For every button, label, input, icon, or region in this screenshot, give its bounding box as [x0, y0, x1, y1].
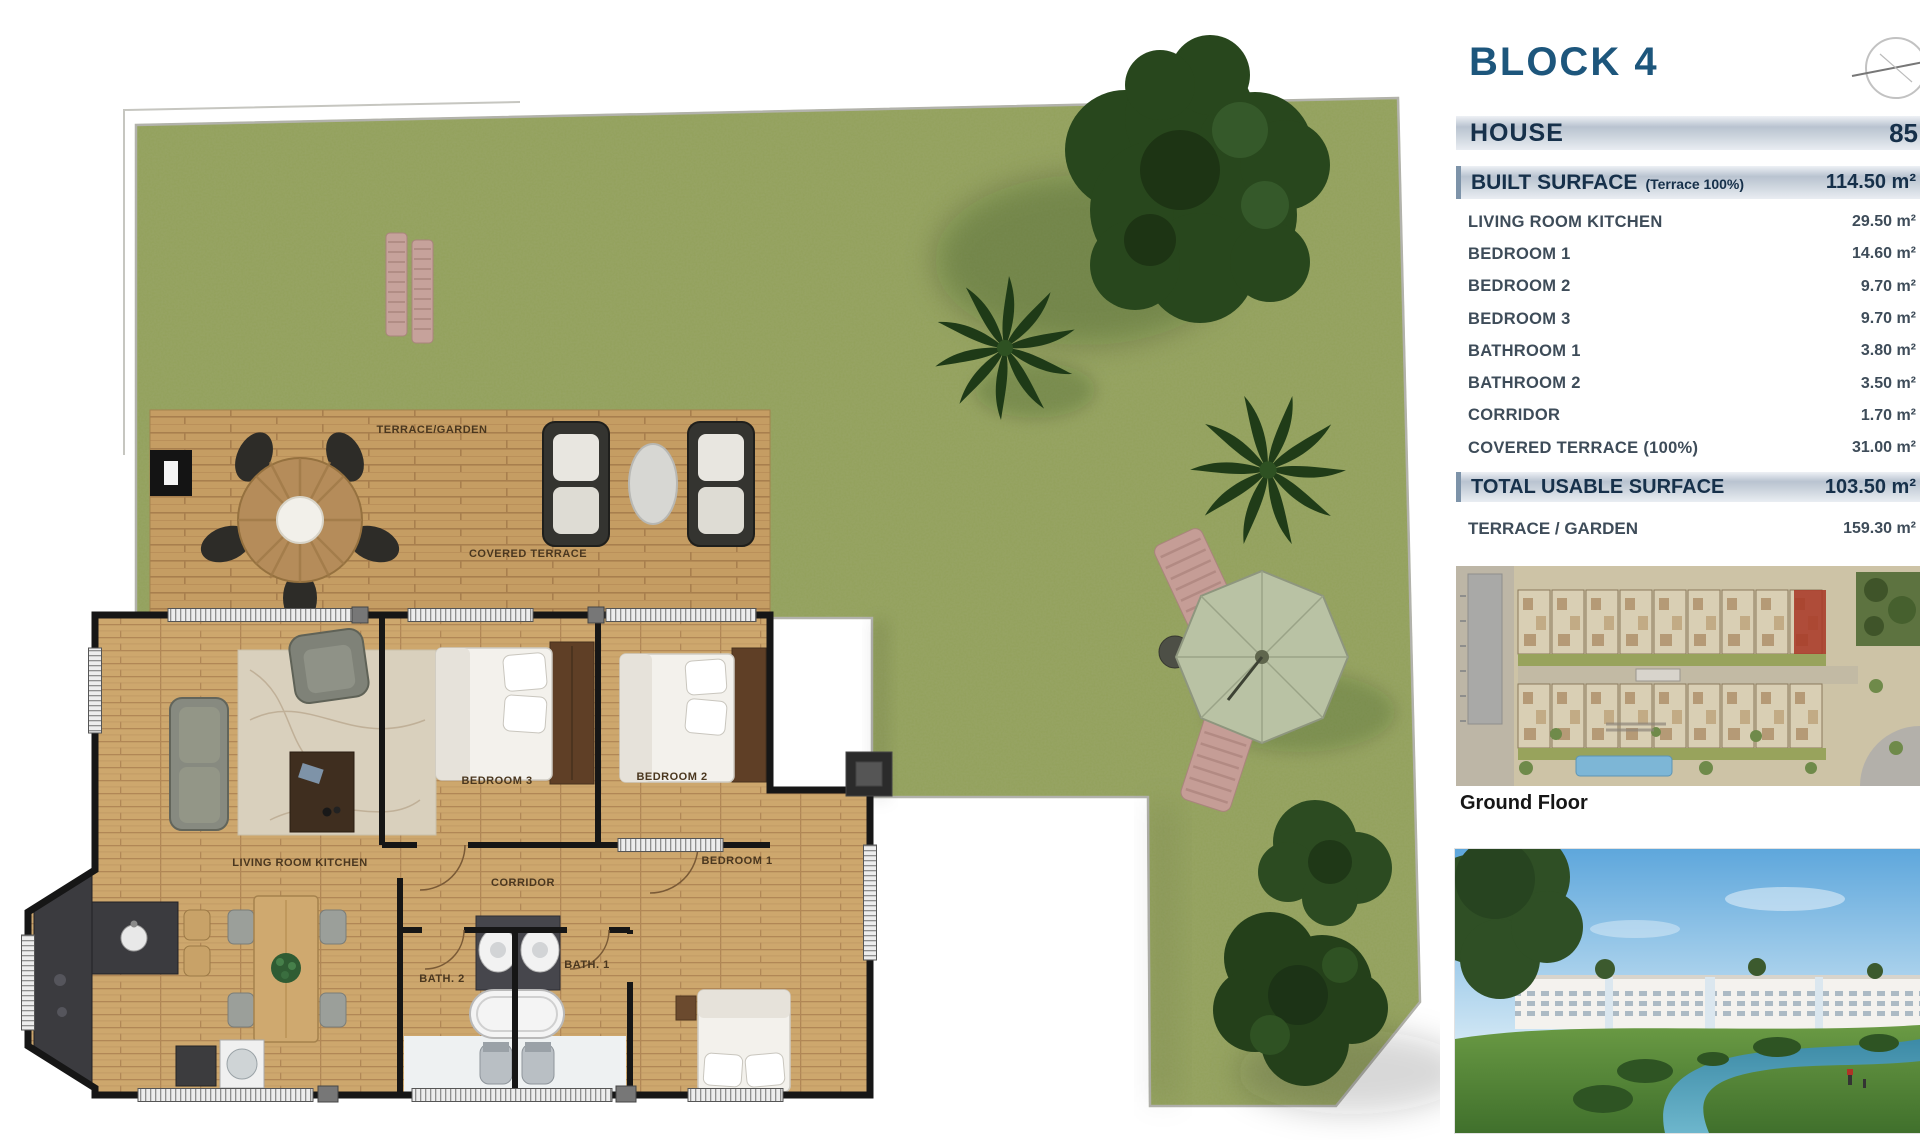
site-plan-thumbnail	[1456, 566, 1920, 786]
total-usable-bar: TOTAL USABLE SURFACE 103.50 m²	[1456, 472, 1920, 502]
tree-large	[1065, 35, 1330, 323]
floor-plan-illustration: TERRACE/GARDEN COVERED TERRACE	[0, 0, 1440, 1140]
bedroom2-furniture	[620, 648, 766, 782]
terrace-garden-row: TERRACE / GARDEN 159.30 m²	[1456, 514, 1920, 544]
compass-icon	[1850, 26, 1920, 110]
list-item: BEDROOM 2 9.70 m²	[1456, 271, 1920, 303]
bedroom3-furniture	[436, 642, 594, 784]
built-surface-note: (Terrace 100%)	[1645, 173, 1744, 192]
label-terrace-garden: TERRACE/GARDEN	[377, 424, 488, 436]
coffee-table	[290, 752, 354, 832]
built-surface-label: BUILT SURFACE	[1461, 171, 1637, 195]
house-number: 85	[1889, 118, 1920, 149]
covered-terrace-deck: TERRACE/GARDEN COVERED TERRACE	[150, 410, 770, 624]
list-item: COVERED TERRACE (100%) 31.00 m²	[1456, 432, 1920, 464]
brochure-page: TERRACE/GARDEN COVERED TERRACE	[0, 0, 1920, 1140]
label-living: LIVING ROOM KITCHEN	[232, 857, 367, 869]
site-plan-caption: Ground Floor	[1460, 792, 1588, 815]
list-item: BEDROOM 1 14.60 m²	[1456, 238, 1920, 270]
label-bedroom1: BEDROOM 1	[701, 855, 772, 867]
total-value: 103.50 m²	[1825, 476, 1920, 499]
page-title: BLOCK 4	[1469, 40, 1659, 85]
list-item: BATHROOM 1 3.80 m²	[1456, 335, 1920, 367]
label-bedroom3: BEDROOM 3	[461, 775, 532, 787]
label-corridor: CORRIDOR	[491, 877, 555, 889]
terrace-garden-value: 159.30 m²	[1843, 520, 1920, 538]
info-sidebar: BLOCK 4 HOUSE 85 BUILT SURFACE (Terrace …	[1440, 0, 1920, 1140]
label-bedroom2: BEDROOM 2	[636, 771, 707, 783]
house-label: HOUSE	[1456, 119, 1564, 148]
terrace-garden-label: TERRACE / GARDEN	[1456, 519, 1638, 539]
list-item: LIVING ROOM KITCHEN 29.50 m²	[1456, 206, 1920, 238]
development-photo	[1454, 848, 1920, 1134]
list-item: BEDROOM 3 9.70 m²	[1456, 303, 1920, 335]
label-bath2: BATH. 2	[419, 973, 464, 985]
living-armchair	[288, 627, 371, 705]
built-surface-bar: BUILT SURFACE (Terrace 100%) 114.50 m²	[1456, 166, 1920, 199]
house-header-bar: HOUSE 85	[1456, 116, 1920, 150]
built-surface-value: 114.50 m²	[1826, 171, 1920, 194]
room-surface-list: LIVING ROOM KITCHEN 29.50 m² BEDROOM 1 1…	[1456, 206, 1920, 464]
label-bath1: BATH. 1	[564, 959, 609, 971]
living-sofa	[170, 698, 228, 830]
label-covered-terrace: COVERED TERRACE	[469, 548, 587, 560]
highlighted-unit	[1794, 590, 1826, 654]
total-label: TOTAL USABLE SURFACE	[1461, 476, 1724, 499]
list-item: CORRIDOR 1.70 m²	[1456, 400, 1920, 432]
list-item: BATHROOM 2 3.50 m²	[1456, 367, 1920, 399]
parasol-umbrella	[1176, 571, 1348, 743]
